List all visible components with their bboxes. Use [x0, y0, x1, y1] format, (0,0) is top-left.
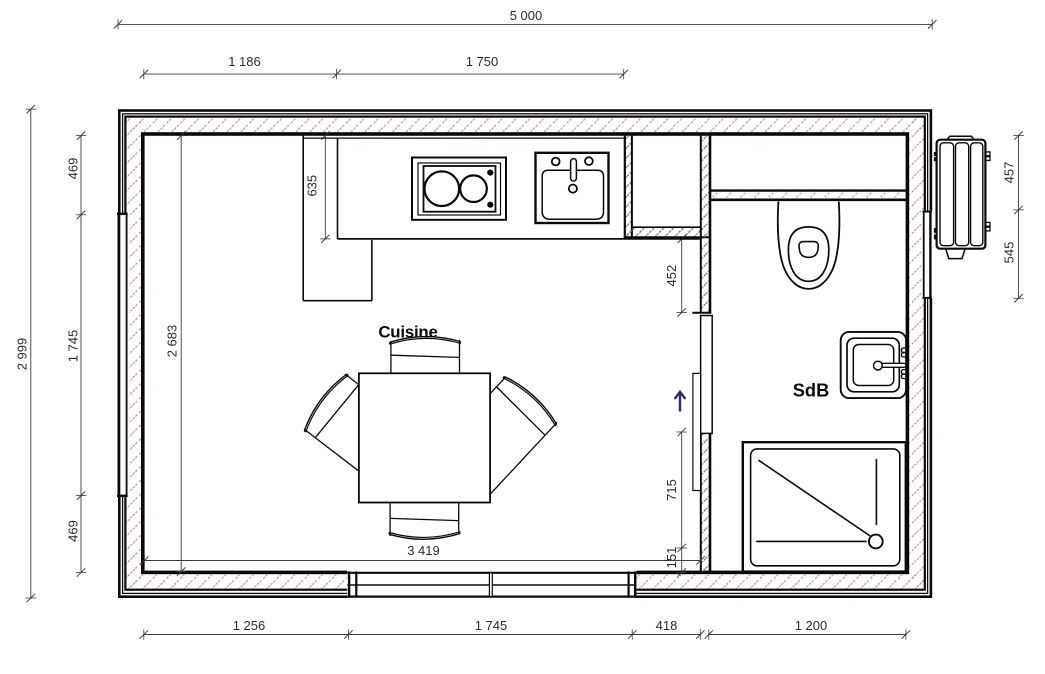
svg-text:452: 452 [664, 265, 679, 287]
svg-text:Cuisine: Cuisine [378, 323, 437, 342]
svg-text:469: 469 [66, 520, 81, 542]
svg-text:418: 418 [656, 618, 678, 633]
svg-text:1 200: 1 200 [795, 618, 828, 633]
svg-text:1 256: 1 256 [233, 618, 266, 633]
svg-text:469: 469 [66, 158, 81, 180]
svg-text:3 419: 3 419 [407, 543, 440, 558]
svg-text:635: 635 [305, 175, 320, 197]
svg-text:715: 715 [664, 479, 679, 501]
svg-text:457: 457 [1001, 162, 1016, 184]
svg-text:SdB: SdB [793, 380, 830, 401]
svg-text:545: 545 [1001, 242, 1016, 264]
svg-text:1 745: 1 745 [66, 330, 81, 363]
svg-text:151: 151 [664, 547, 679, 569]
svg-text:2 999: 2 999 [15, 338, 30, 371]
svg-text:1 750: 1 750 [466, 54, 499, 69]
svg-text:2 683: 2 683 [165, 325, 180, 358]
svg-text:1 186: 1 186 [228, 54, 261, 69]
svg-text:5 000: 5 000 [510, 8, 543, 23]
svg-text:1 745: 1 745 [475, 618, 508, 633]
